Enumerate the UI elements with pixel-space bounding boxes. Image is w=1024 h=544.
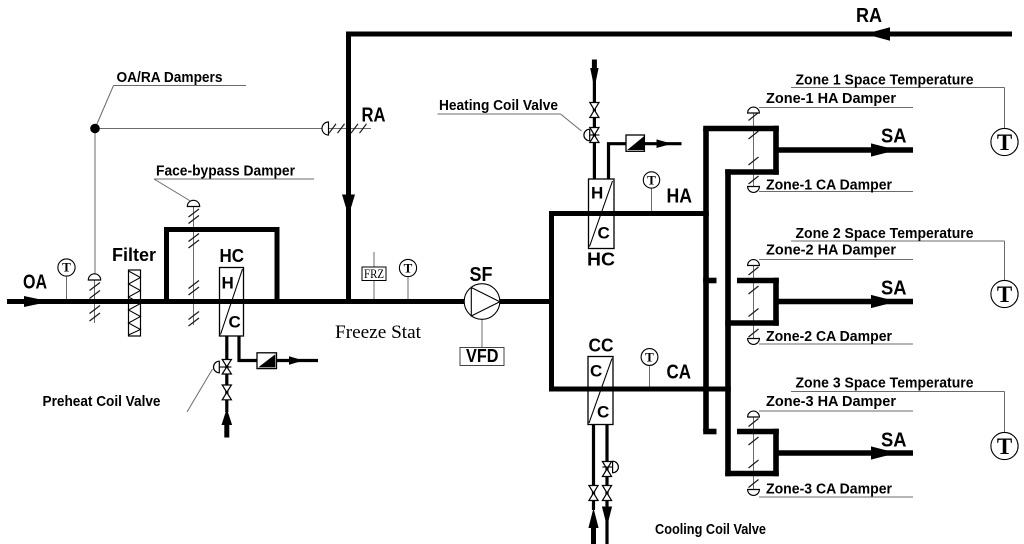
- svg-text:Zone 3 Space Temperature: Zone 3 Space Temperature: [796, 376, 974, 392]
- svg-text:C: C: [597, 403, 609, 422]
- svg-text:H: H: [591, 184, 603, 203]
- svg-text:Zone-3 HA Damper: Zone-3 HA Damper: [766, 394, 896, 410]
- svg-text:Zone 2 Space Temperature: Zone 2 Space Temperature: [796, 226, 974, 242]
- svg-text:HC: HC: [587, 250, 615, 270]
- svg-text:FRZ: FRZ: [364, 266, 384, 281]
- svg-text:OA/RA Dampers: OA/RA Dampers: [117, 70, 223, 86]
- svg-text:SA: SA: [881, 278, 907, 300]
- svg-text:Zone-1 CA Damper: Zone-1 CA Damper: [766, 178, 892, 194]
- svg-text:T: T: [997, 130, 1012, 155]
- svg-text:C: C: [229, 313, 241, 332]
- svg-text:T: T: [997, 282, 1012, 307]
- svg-text:Preheat Coil Valve: Preheat Coil Valve: [43, 394, 161, 410]
- svg-text:T: T: [645, 350, 654, 365]
- svg-text:Heating Coil Valve: Heating Coil Valve: [439, 98, 558, 114]
- svg-text:Cooling Coil Valve: Cooling Coil Valve: [655, 522, 766, 538]
- svg-text:Freeze Stat: Freeze Stat: [335, 322, 422, 343]
- svg-text:T: T: [62, 260, 71, 275]
- svg-text:RA: RA: [856, 5, 882, 27]
- svg-text:Zone-1 HA Damper: Zone-1 HA Damper: [766, 91, 896, 107]
- svg-text:Zone 1 Space Temperature: Zone 1 Space Temperature: [796, 73, 974, 89]
- svg-text:Zone-2 HA Damper: Zone-2 HA Damper: [766, 243, 896, 259]
- svg-text:Filter: Filter: [112, 245, 156, 265]
- svg-text:C: C: [590, 362, 602, 381]
- svg-text:C: C: [598, 224, 610, 243]
- svg-text:Zone-2 CA Damper: Zone-2 CA Damper: [766, 329, 892, 345]
- svg-text:RA: RA: [362, 105, 386, 127]
- svg-text:SF: SF: [470, 264, 493, 286]
- svg-text:CC: CC: [589, 336, 614, 356]
- svg-text:Face-bypass Damper: Face-bypass Damper: [156, 164, 295, 180]
- svg-text:H: H: [222, 274, 234, 293]
- svg-text:SA: SA: [881, 430, 907, 452]
- svg-text:CA: CA: [667, 362, 692, 384]
- svg-text:T: T: [647, 173, 656, 188]
- svg-text:Zone-3 CA Damper: Zone-3 CA Damper: [766, 482, 892, 498]
- svg-text:T: T: [404, 261, 413, 276]
- svg-text:OA: OA: [23, 272, 47, 294]
- svg-text:HC: HC: [220, 246, 245, 266]
- svg-text:HA: HA: [667, 186, 693, 208]
- svg-text:SA: SA: [881, 126, 907, 148]
- svg-text:VFD: VFD: [466, 346, 499, 366]
- svg-text:T: T: [997, 434, 1012, 459]
